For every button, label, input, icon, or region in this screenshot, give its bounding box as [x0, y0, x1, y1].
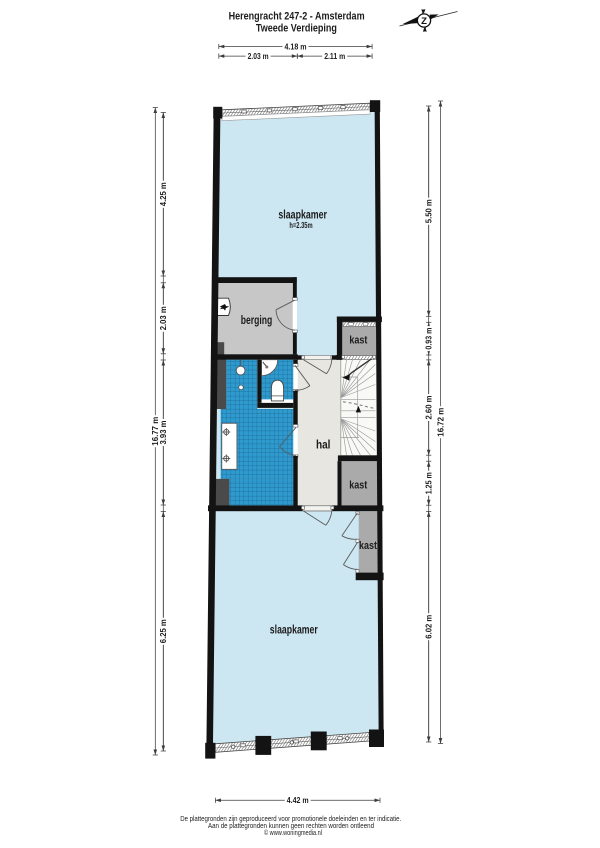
- svg-text:© www.woningmedia.nl: © www.woningmedia.nl: [264, 829, 322, 837]
- svg-text:Tweede Verdieping: Tweede Verdieping: [256, 23, 337, 35]
- svg-text:16.72 m: 16.72 m: [435, 408, 445, 437]
- svg-text:4.42 m: 4.42 m: [287, 795, 309, 805]
- svg-text:6.02 m: 6.02 m: [424, 615, 434, 639]
- svg-text:hal: hal: [316, 437, 331, 451]
- svg-text:2.03 m: 2.03 m: [248, 51, 269, 61]
- svg-text:4.25 m: 4.25 m: [158, 182, 168, 206]
- svg-text:kast: kast: [349, 334, 367, 346]
- svg-text:h=2.35m: h=2.35m: [289, 221, 312, 230]
- svg-text:kast: kast: [349, 480, 367, 492]
- svg-text:kast: kast: [359, 540, 377, 552]
- svg-text:Z: Z: [421, 16, 427, 27]
- svg-text:5.50 m: 5.50 m: [424, 199, 434, 223]
- svg-text:1.25 m: 1.25 m: [424, 472, 434, 494]
- svg-text:slaapkamer: slaapkamer: [278, 208, 327, 222]
- svg-text:6.25 m: 6.25 m: [158, 619, 168, 643]
- svg-text:Aan de plattegronden kunnen ge: Aan de plattegronden kunnen geen rechten…: [208, 823, 374, 830]
- svg-text:2.11 m: 2.11 m: [324, 51, 345, 61]
- svg-text:slaapkamer: slaapkamer: [270, 622, 318, 636]
- svg-text:0.93 m: 0.93 m: [424, 328, 434, 350]
- svg-text:2.60 m: 2.60 m: [424, 396, 434, 420]
- svg-text:2.03 m: 2.03 m: [158, 306, 168, 330]
- svg-text:3.93 m: 3.93 m: [158, 421, 168, 445]
- svg-text:Herengracht 247-2 - Amsterdam: Herengracht 247-2 - Amsterdam: [229, 11, 365, 23]
- svg-text:De plattegronden zijn geproduc: De plattegronden zijn geproduceerd voor …: [180, 816, 401, 823]
- svg-text:berging: berging: [241, 313, 273, 327]
- svg-text:4.18 m: 4.18 m: [285, 41, 307, 51]
